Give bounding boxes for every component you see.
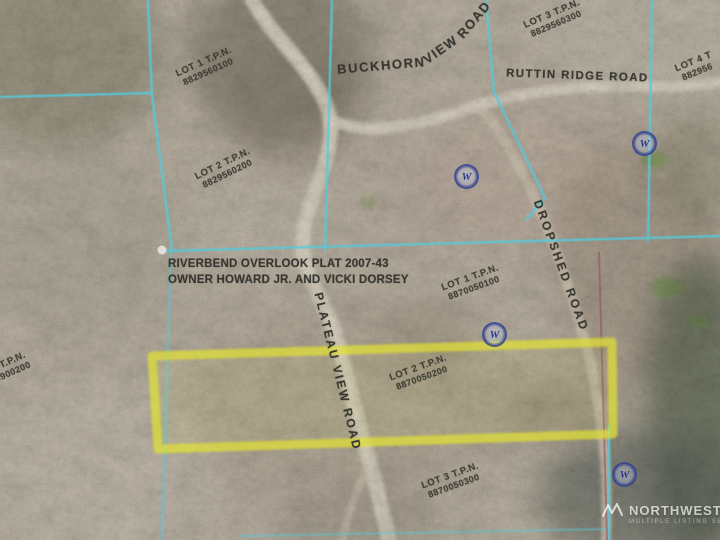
listing-watermark: NORTHWEST MULTIPLE LISTING SERVICE — [602, 502, 720, 525]
well-letter: W — [490, 329, 500, 341]
well-marker-icon: W — [482, 322, 507, 347]
parcel-line — [648, 0, 652, 242]
well-marker-icon: W — [632, 131, 657, 156]
plat-owner: OWNER HOWARD JR. AND VICKI DORSEY — [168, 274, 409, 286]
well-marker-icon: W — [612, 462, 637, 487]
parcel-line — [240, 529, 609, 536]
aerial-plat-map: LOT 1 T.P.N. 8829560100 LOT 2 T.P.N. 882… — [0, 0, 720, 540]
highlighted-parcel-outline — [152, 342, 613, 449]
well-letter: W — [462, 171, 472, 183]
well-letter: W — [640, 138, 650, 150]
parcel-line — [325, 0, 332, 251]
parcel-line — [148, 0, 172, 250]
plat-title: RIVERBEND OVERLOOK PLAT 2007-43 — [168, 258, 389, 270]
watermark-subtitle: MULTIPLE LISTING SERVICE — [629, 519, 720, 525]
well-marker-icon: W — [454, 164, 479, 189]
well-letter: W — [620, 469, 630, 481]
nwmls-logo-icon — [602, 502, 624, 518]
survey-corner-dot — [158, 246, 167, 255]
parcel-line — [162, 236, 720, 251]
watermark-brand: NORTHWEST — [629, 503, 720, 518]
parcel-line — [0, 93, 152, 97]
